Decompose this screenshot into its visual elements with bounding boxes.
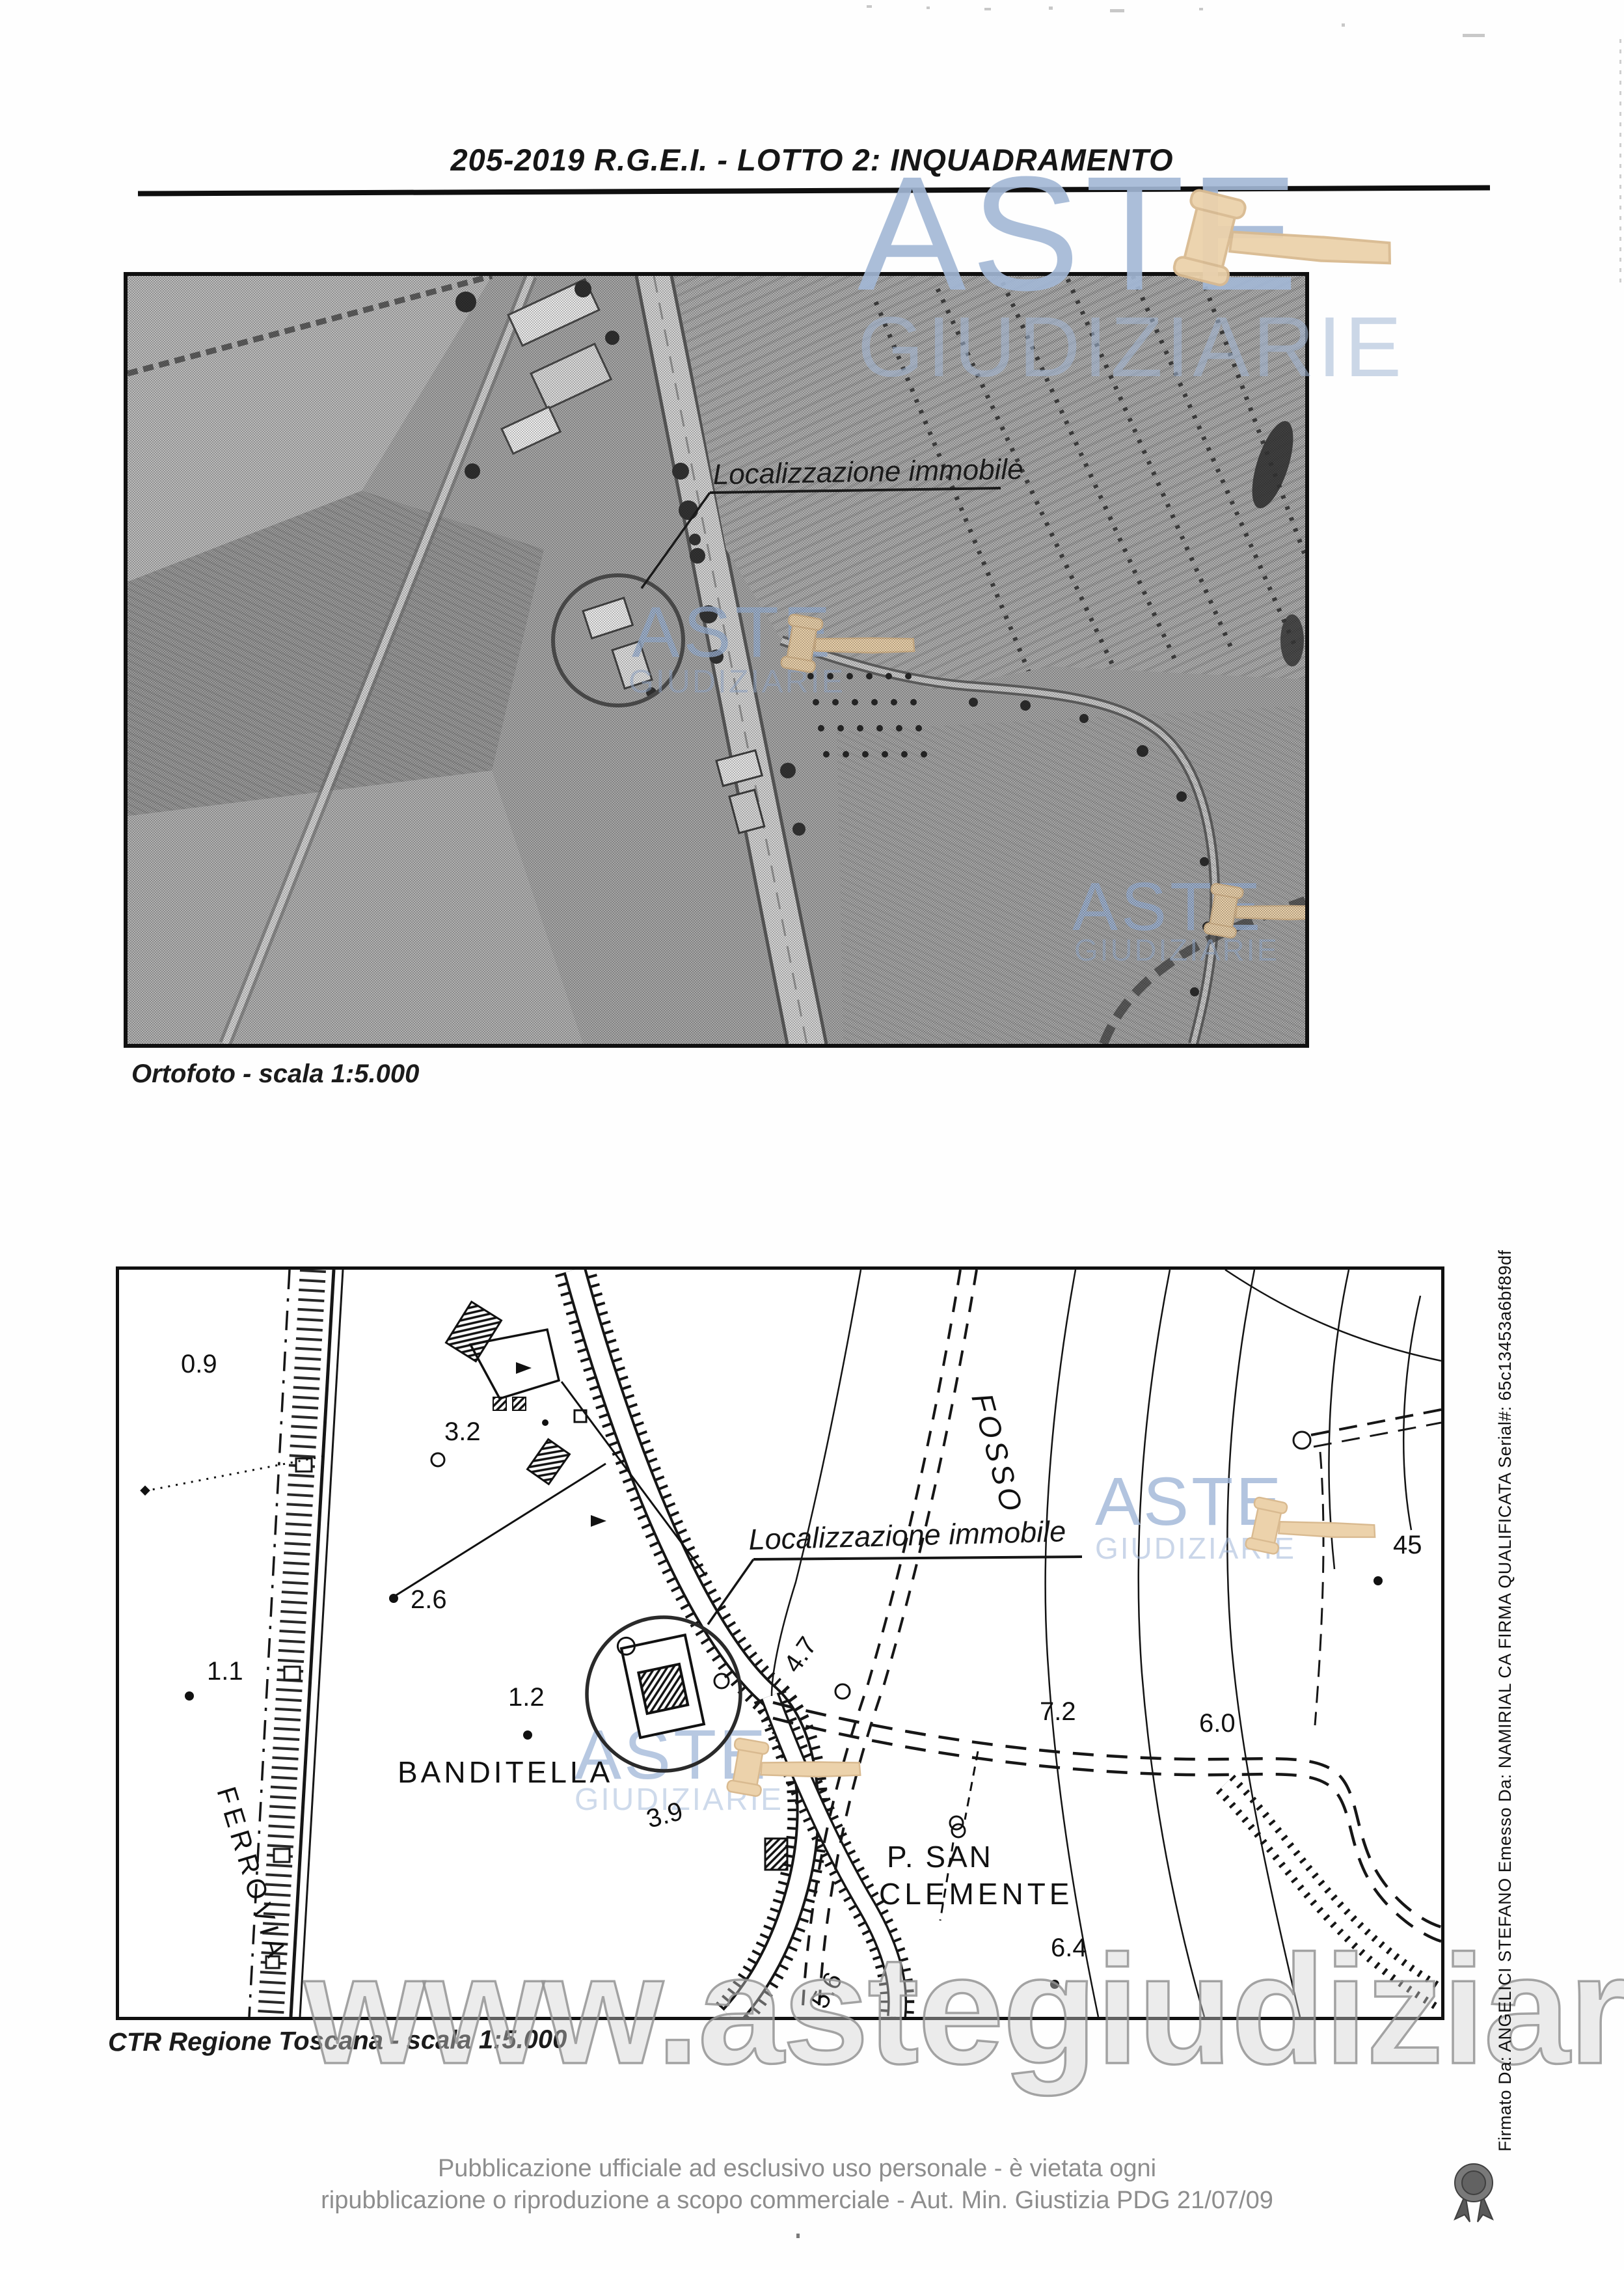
title-rule (138, 185, 1490, 196)
san-clemente-label-1: P. SAN (887, 1840, 993, 1874)
scan-speck (867, 5, 872, 8)
ctr-map: FERROVIA FOSSO (116, 1266, 1444, 2020)
scan-speck (984, 8, 991, 10)
scan-speck (796, 2234, 800, 2238)
ortofoto-caption: Ortofoto - scala 1:5.000 (131, 1060, 419, 1089)
banditella-label: BANDITELLA (398, 1755, 613, 1789)
svg-text:3.2: 3.2 (444, 1417, 481, 1446)
halftone-overlay (128, 276, 1305, 1044)
page-title: 205-2019 R.G.E.I. - LOTTO 2: INQUADRAMEN… (0, 142, 1624, 178)
svg-text:1.2: 1.2 (508, 1683, 545, 1712)
footer-line-2: ripubblicazione o riproduzione a scopo c… (0, 2185, 1594, 2217)
spot-height-60: 6.0 (1199, 1709, 1236, 1738)
svg-text:45: 45 (1393, 1531, 1422, 1559)
scan-speck (1199, 8, 1203, 10)
ortofoto-map: ASTE GIUDIZIARIE ASTE GIUDIZIARIE (124, 272, 1309, 1048)
scan-speck (1110, 9, 1124, 12)
scan-speck (927, 7, 930, 9)
ctr-caption: CTR Regione Toscana - scala 1:5.000 (108, 2025, 567, 2058)
scan-speck (1463, 34, 1485, 37)
hatched-building (765, 1839, 787, 1870)
svg-text:0.9: 0.9 (181, 1350, 217, 1378)
signature-ribbon-icon (1446, 2161, 1502, 2223)
svg-text:1.1: 1.1 (207, 1657, 243, 1686)
spot-height-72: 7.2 (1040, 1697, 1076, 1726)
document-page: 205-2019 R.G.E.I. - LOTTO 2: INQUADRAMEN… (0, 0, 1624, 2270)
map-base (119, 1270, 1441, 2017)
svg-text:2.6: 2.6 (411, 1585, 447, 1614)
footer-line-1: Pubblicazione ufficiale ad esclusivo uso… (0, 2153, 1594, 2185)
svg-text:6.4: 6.4 (1051, 1934, 1087, 1962)
scan-speck (1049, 7, 1053, 10)
ctr-image: FERROVIA FOSSO (119, 1270, 1441, 2017)
san-clemente-label-2: CLEMENTE (879, 1877, 1073, 1911)
digital-signature-text: Firmato Da: ANGELICI STEFANO Emesso Da: … (1495, 1250, 1515, 2152)
ortofoto-image: ASTE GIUDIZIARIE ASTE GIUDIZIARIE (128, 276, 1305, 1044)
scan-speck (1342, 23, 1345, 27)
footer-disclaimer: Pubblicazione ufficiale ad esclusivo uso… (0, 2153, 1594, 2216)
